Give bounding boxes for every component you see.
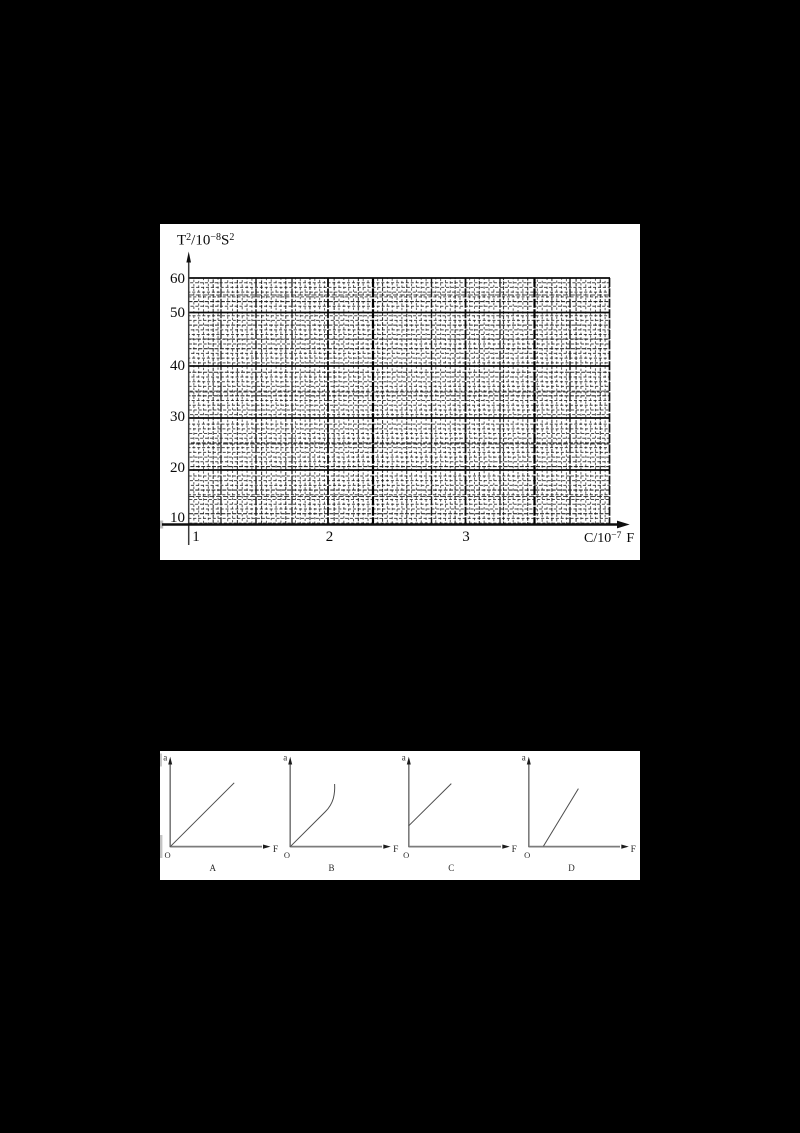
svg-text:a: a xyxy=(283,753,287,763)
svg-text:C: C xyxy=(448,863,454,873)
svg-text:D: D xyxy=(568,863,575,873)
svg-text:O: O xyxy=(165,850,171,860)
svg-text:a: a xyxy=(163,753,167,763)
svg-text:a: a xyxy=(402,753,406,763)
svg-text:F: F xyxy=(631,845,636,855)
svg-text:B: B xyxy=(328,863,334,873)
svg-text:F: F xyxy=(273,845,278,855)
svg-text:a: a xyxy=(522,753,526,763)
svg-text:O: O xyxy=(284,850,290,860)
svg-text:F: F xyxy=(512,845,517,855)
svg-text:A: A xyxy=(210,863,217,873)
svg-text:O: O xyxy=(403,850,409,860)
svg-text:O: O xyxy=(524,850,530,860)
svg-text:F: F xyxy=(393,845,398,855)
